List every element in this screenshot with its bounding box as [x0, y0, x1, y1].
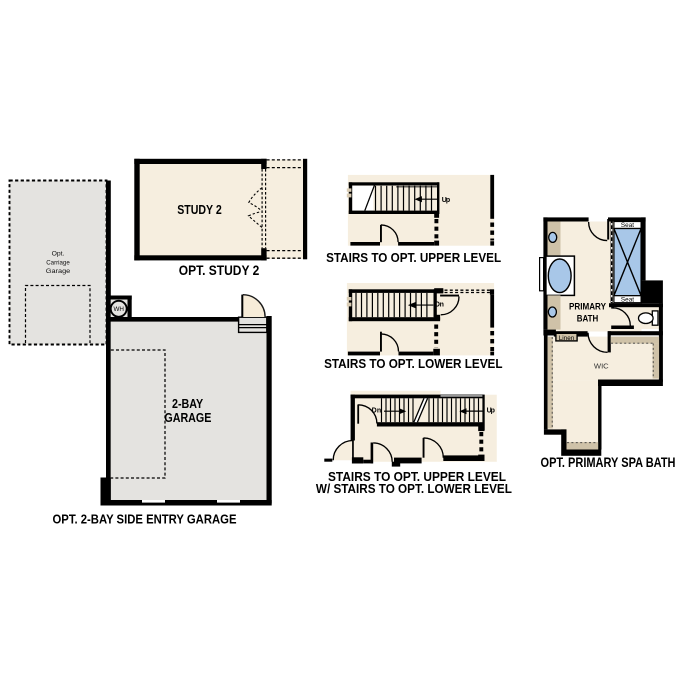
svg-text:PRIMARY: PRIMARY: [569, 302, 606, 312]
svg-text:WH: WH: [113, 306, 124, 313]
svg-text:Up: Up: [487, 407, 495, 414]
svg-text:Dn: Dn: [435, 302, 444, 309]
svg-text:Garage: Garage: [46, 268, 71, 275]
svg-text:GARAGE: GARAGE: [164, 410, 211, 425]
svg-text:Dn: Dn: [372, 407, 382, 414]
svg-text:STAIRS TO OPT. LOWER LEVEL: STAIRS TO OPT. LOWER LEVEL: [324, 356, 502, 371]
svg-text:OPT. 2-BAY SIDE ENTRY GARAGE: OPT. 2-BAY SIDE ENTRY GARAGE: [53, 511, 237, 526]
svg-text:OPT. PRIMARY SPA BATH: OPT. PRIMARY SPA BATH: [541, 454, 676, 470]
svg-text:BATH: BATH: [577, 314, 599, 324]
svg-text:STUDY 2: STUDY 2: [177, 202, 222, 217]
svg-text:2-BAY: 2-BAY: [172, 396, 203, 411]
svg-text:Up: Up: [442, 197, 451, 204]
svg-text:OPT. STUDY 2: OPT. STUDY 2: [179, 262, 260, 278]
svg-text:Carriage: Carriage: [46, 259, 70, 266]
svg-text:Seat: Seat: [621, 296, 634, 303]
svg-text:Opt.: Opt.: [52, 251, 65, 258]
svg-text:WIC: WIC: [594, 362, 609, 371]
svg-text:Linen: Linen: [559, 335, 575, 342]
svg-text:STAIRS TO OPT. UPPER LEVEL: STAIRS TO OPT. UPPER LEVEL: [326, 250, 501, 265]
svg-text:W/ STAIRS TO OPT. LOWER LEVEL: W/ STAIRS TO OPT. LOWER LEVEL: [316, 481, 512, 496]
